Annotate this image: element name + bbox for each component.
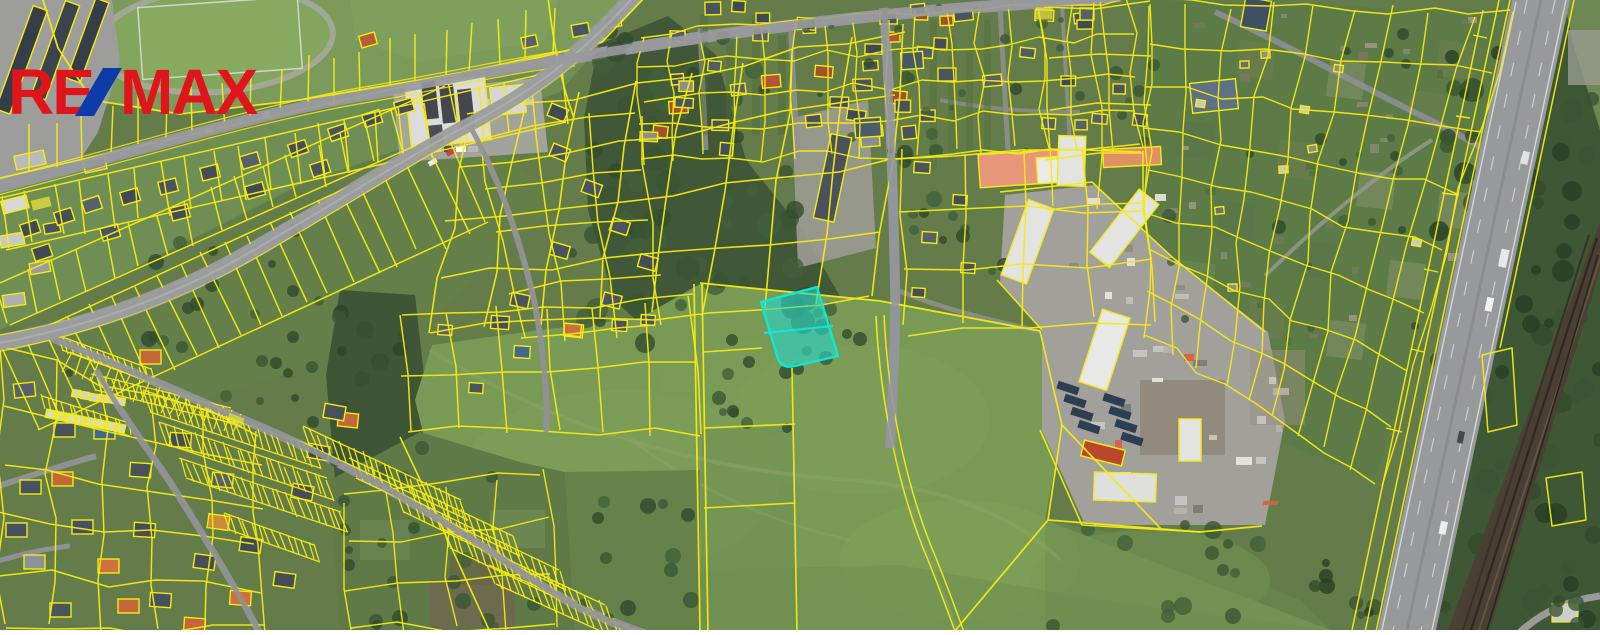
svg-text:MAX: MAX — [120, 56, 259, 128]
svg-text:RE: RE — [8, 56, 93, 128]
